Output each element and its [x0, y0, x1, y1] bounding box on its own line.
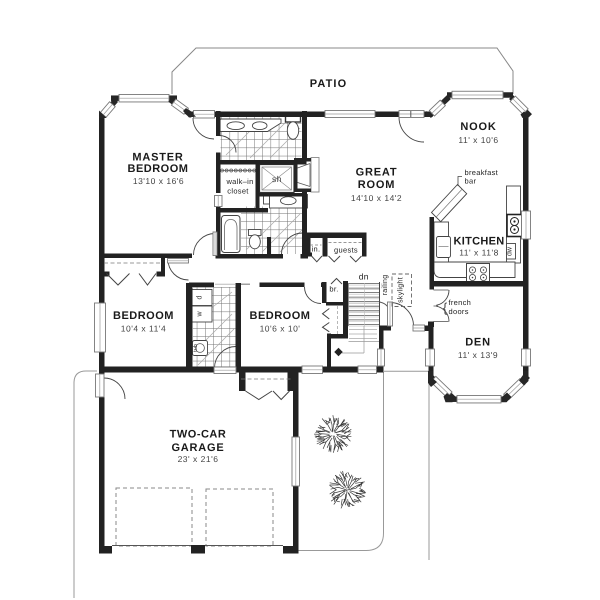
svg-text:11' x 10'6: 11' x 10'6	[458, 135, 498, 145]
svg-text:br.: br.	[329, 284, 338, 293]
svg-text:walk–in: walk–in	[225, 177, 253, 186]
svg-text:in.: in.	[312, 244, 321, 253]
svg-text:french: french	[448, 298, 471, 307]
svg-text:TWO-CAR: TWO-CAR	[170, 428, 227, 440]
svg-text:10'6 x 10': 10'6 x 10'	[260, 323, 301, 333]
svg-text:ROOM: ROOM	[358, 179, 395, 191]
svg-text:closet: closet	[227, 186, 249, 195]
svg-text:BEDROOM: BEDROOM	[113, 310, 174, 322]
svg-text:PATIO: PATIO	[310, 78, 347, 90]
svg-text:GARAGE: GARAGE	[171, 442, 224, 454]
svg-text:14'10 x 14'2: 14'10 x 14'2	[351, 193, 402, 203]
svg-text:10'4 x 11'4: 10'4 x 11'4	[121, 323, 166, 333]
svg-text:23' x 21'6: 23' x 21'6	[178, 454, 219, 464]
svg-text:KITCHEN: KITCHEN	[453, 235, 504, 247]
svg-text:sh: sh	[272, 174, 282, 184]
svg-text:BEDROOM: BEDROOM	[128, 163, 189, 175]
svg-text:railing: railing	[382, 275, 389, 296]
svg-text:dw: dw	[507, 246, 514, 256]
svg-text:skylight: skylight	[398, 277, 405, 303]
svg-text:tub: tub	[193, 344, 199, 352]
svg-text:{: {	[443, 300, 448, 315]
svg-text:11' x 13'9: 11' x 13'9	[458, 350, 498, 360]
svg-text:MASTER: MASTER	[132, 151, 183, 163]
svg-text:guests: guests	[334, 245, 358, 254]
svg-text:d: d	[197, 295, 204, 299]
svg-text:dn: dn	[359, 271, 369, 281]
svg-text:13'10 x 16'6: 13'10 x 16'6	[133, 176, 184, 186]
svg-text:bar: bar	[464, 177, 476, 186]
svg-text:11' x 11'8: 11' x 11'8	[459, 247, 499, 257]
svg-text:GREAT: GREAT	[356, 166, 398, 178]
svg-text:BEDROOM: BEDROOM	[250, 310, 311, 322]
svg-text:doors: doors	[448, 307, 468, 316]
svg-text:w: w	[197, 311, 204, 318]
svg-text:DEN: DEN	[465, 336, 491, 348]
svg-text:NOOK: NOOK	[460, 121, 496, 133]
